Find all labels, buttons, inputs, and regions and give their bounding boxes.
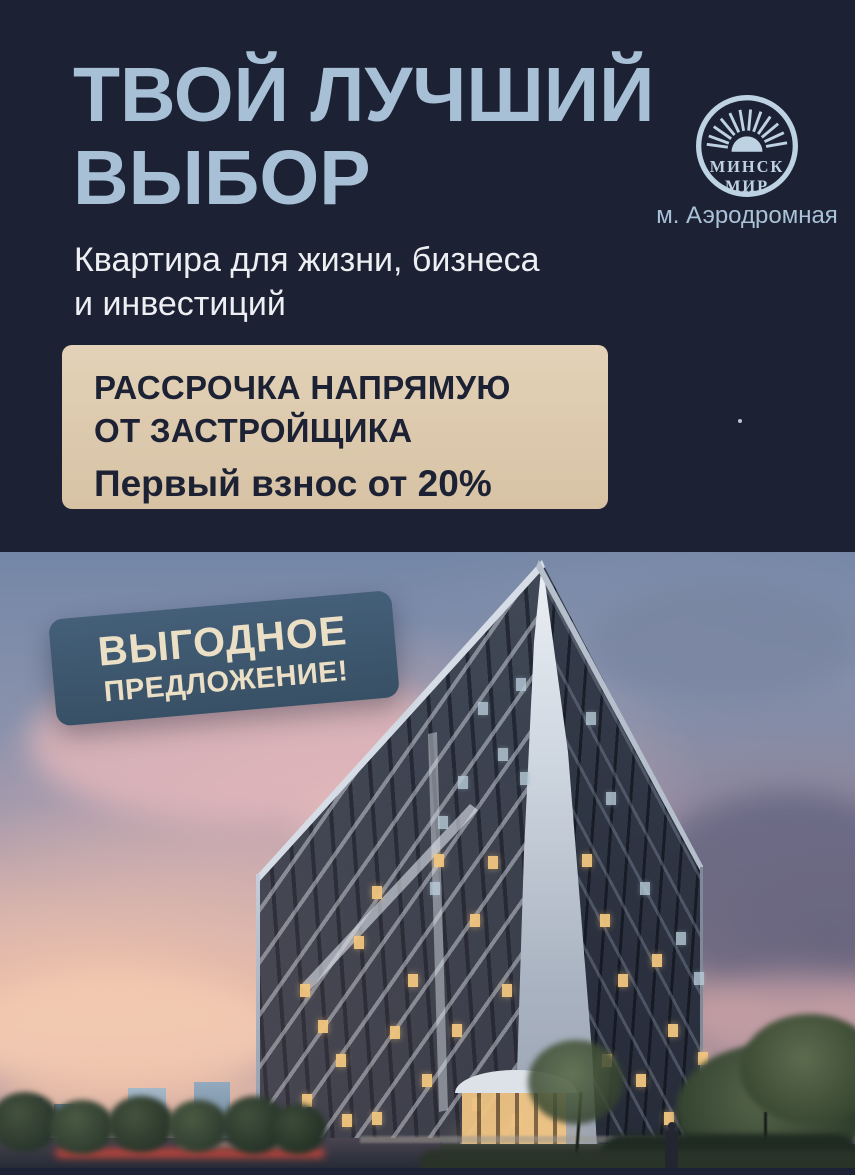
window-reflection — [694, 972, 704, 985]
window-reflection — [676, 932, 686, 945]
person-body — [665, 1130, 678, 1168]
minsk-mir-logo-icon: МИНСК МИР — [689, 88, 805, 204]
window-reflection — [606, 792, 616, 805]
grass-strip — [420, 1150, 855, 1168]
brand-logo: МИНСК МИР — [689, 88, 805, 204]
advert-poster: ТВОЙ ЛУЧШИЙ ВЫБОР МИНСК МИР м. Аэродромн… — [0, 0, 855, 1175]
offer-line1: РАССРОЧКА НАПРЯМУЮ — [94, 366, 578, 409]
person-head — [668, 1122, 676, 1130]
window-reflection — [520, 772, 530, 785]
tree-silhouette — [270, 1104, 326, 1154]
lit-window — [372, 1112, 382, 1125]
offer-line3: Первый взнос от 20% — [94, 461, 578, 507]
lit-window — [470, 914, 480, 927]
page-title-line1: ТВОЙ ЛУЧШИЙ — [73, 54, 654, 137]
offer-box: РАССРОЧКА НАПРЯМУЮ ОТ ЗАСТРОЙЩИКА Первый… — [62, 345, 608, 509]
lit-window — [342, 1114, 352, 1127]
lit-window — [618, 974, 628, 987]
tree-silhouette — [50, 1100, 114, 1154]
lit-window — [582, 854, 592, 867]
lit-window — [390, 1026, 400, 1039]
logo-text-line1: МИНСК — [710, 157, 784, 176]
window-reflection — [586, 712, 596, 725]
lit-window — [318, 1020, 328, 1033]
window-reflection — [458, 776, 468, 789]
lit-window — [600, 914, 610, 927]
poster-subtitle: Квартира для жизни, бизнеса и инвестиций — [74, 238, 540, 326]
tree-silhouette — [528, 1040, 624, 1124]
lit-window — [408, 974, 418, 987]
tree-silhouette — [168, 1100, 228, 1152]
window-reflection — [640, 882, 650, 895]
window-reflection — [430, 882, 440, 895]
page-title-line2: ВЫБОР — [73, 137, 654, 220]
lit-window — [354, 936, 364, 949]
lit-window — [372, 886, 382, 899]
lit-window — [300, 984, 310, 997]
star-dot — [738, 419, 742, 423]
lit-window — [434, 854, 444, 867]
lit-window — [502, 984, 512, 997]
window-reflection — [438, 816, 448, 829]
metro-station-label: м. Аэродромная — [652, 202, 842, 230]
poster-subtitle-line2: и инвестиций — [74, 282, 540, 326]
tree-silhouette — [108, 1096, 174, 1152]
poster-subtitle-line1: Квартира для жизни, бизнеса — [74, 238, 540, 282]
person-silhouette — [664, 1122, 680, 1168]
offer-line2: ОТ ЗАСТРОЙЩИКА — [94, 409, 578, 452]
lit-window — [652, 954, 662, 967]
lit-window — [336, 1054, 346, 1067]
lit-window — [636, 1074, 646, 1087]
bottom-frame — [0, 1168, 855, 1175]
lit-window — [668, 1024, 678, 1037]
window-reflection — [498, 748, 508, 761]
lit-window — [422, 1074, 432, 1087]
window-reflection — [516, 678, 526, 691]
logo-text-line2: МИР — [725, 176, 769, 195]
window-reflection — [478, 702, 488, 715]
page-title: ТВОЙ ЛУЧШИЙ ВЫБОР — [73, 54, 654, 220]
lit-window — [452, 1024, 462, 1037]
lit-window — [488, 856, 498, 869]
